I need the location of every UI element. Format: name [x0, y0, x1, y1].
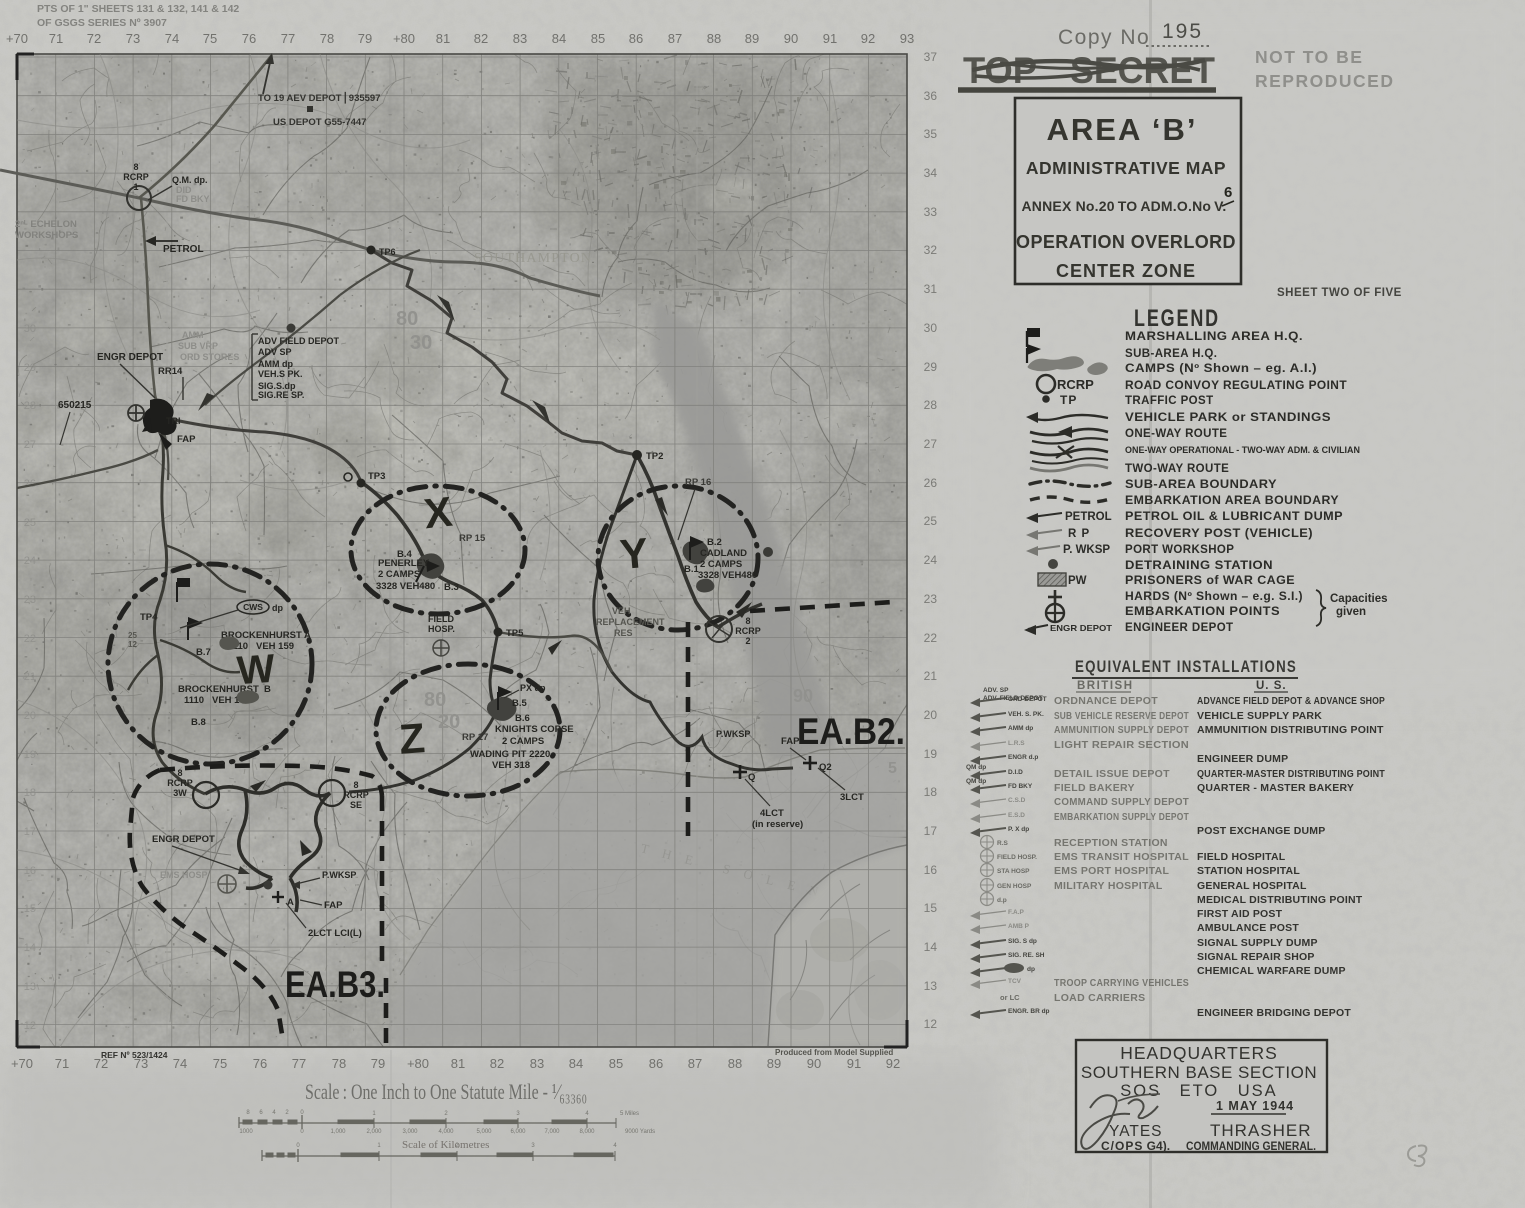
- svg-text:B.1: B.1: [684, 564, 700, 575]
- svg-text:2,000: 2,000: [366, 1129, 382, 1135]
- svg-text:13: 13: [24, 981, 36, 993]
- svg-text:87: 87: [688, 1056, 702, 1071]
- svg-text:U. S.: U. S.: [1256, 680, 1287, 692]
- svg-text:27: 27: [24, 439, 36, 451]
- svg-text:VEHICLE PARK or STANDINGS: VEHICLE PARK or STANDINGS: [1125, 412, 1331, 424]
- svg-text:3LCT: 3LCT: [840, 792, 864, 803]
- svg-text:2ⁿᴸ ECHELON: 2ⁿᴸ ECHELON: [15, 219, 77, 230]
- svg-text:PETROL: PETROL: [163, 244, 204, 255]
- svg-text:30: 30: [24, 323, 36, 335]
- svg-text:71: 71: [55, 1056, 69, 1071]
- svg-text:TP2: TP2: [646, 451, 663, 462]
- svg-text:EMS PORT HOSPITAL: EMS PORT HOSPITAL: [1054, 865, 1169, 877]
- svg-text:ADMINISTRATIVE MAP: ADMINISTRATIVE MAP: [1026, 158, 1226, 178]
- svg-text:EMBARKATION SUPPLY DEPOT: EMBARKATION SUPPLY DEPOT: [1054, 811, 1189, 823]
- svg-text:ENGR DEPOT: ENGR DEPOT: [1050, 623, 1113, 633]
- svg-text:72: 72: [87, 31, 101, 46]
- svg-text:TP3: TP3: [368, 471, 385, 482]
- svg-text:18: 18: [24, 787, 36, 799]
- svg-text:R P: R P: [1068, 528, 1090, 540]
- svg-text:RCRP: RCRP: [1057, 377, 1094, 392]
- svg-text:STATION HOSPITAL: STATION HOSPITAL: [1197, 865, 1300, 877]
- svg-text:SOUTHERN BASE SECTION: SOUTHERN BASE SECTION: [1081, 1063, 1317, 1082]
- svg-text:ONE-WAY ROUTE: ONE-WAY ROUTE: [1125, 428, 1227, 440]
- svg-text:32: 32: [924, 243, 938, 257]
- svg-text:6: 6: [1224, 184, 1232, 201]
- svg-text:36: 36: [924, 89, 938, 103]
- svg-text:80: 80: [424, 689, 446, 711]
- svg-text:MARSHALLING AREA H.Q.: MARSHALLING AREA H.Q.: [1125, 331, 1303, 343]
- svg-text:YATES: YATES: [1109, 1123, 1163, 1140]
- svg-text:650215: 650215: [58, 400, 92, 411]
- svg-text:3328 VEH480: 3328 VEH480: [376, 581, 435, 592]
- svg-text:P. X dp: P. X dp: [1008, 826, 1029, 833]
- svg-text:VEHICLE SUPPLY PARK: VEHICLE SUPPLY PARK: [1197, 710, 1322, 722]
- svg-text:B.3: B.3: [444, 582, 459, 593]
- svg-text:21: 21: [924, 669, 938, 683]
- svg-text:24: 24: [24, 555, 36, 567]
- svg-text:dp: dp: [1027, 966, 1035, 973]
- svg-text:RP 16: RP 16: [685, 477, 711, 488]
- svg-text:FAP: FAP: [781, 736, 800, 747]
- svg-text:89: 89: [767, 1056, 781, 1071]
- svg-text:RECEPTION STATION: RECEPTION STATION: [1054, 837, 1168, 849]
- svg-text:25: 25: [128, 631, 137, 640]
- svg-text:RCRP: RCRP: [343, 790, 369, 800]
- svg-text:79: 79: [358, 31, 372, 46]
- svg-text:given: given: [1336, 606, 1366, 618]
- svg-text:MILITARY HOSPITAL: MILITARY HOSPITAL: [1054, 880, 1163, 892]
- svg-text:83: 83: [530, 1056, 544, 1071]
- svg-text:4LCT: 4LCT: [760, 808, 784, 819]
- svg-text:ENGINEER BRIDGING DEPOT: ENGINEER BRIDGING DEPOT: [1197, 1007, 1351, 1019]
- svg-text:F.A.P: F.A.P: [1008, 909, 1025, 916]
- svg-text:FIELD BAKERY: FIELD BAKERY: [1054, 782, 1135, 794]
- svg-text:16: 16: [24, 865, 36, 877]
- svg-text:C.S.D: C.S.D: [1008, 797, 1026, 804]
- svg-text:THRASHER: THRASHER: [1210, 1121, 1312, 1140]
- svg-text:RCRP: RCRP: [735, 626, 761, 636]
- svg-text:FIELD HOSPITAL: FIELD HOSPITAL: [1197, 851, 1286, 863]
- svg-text:REF Nº 523/1424: REF Nº 523/1424: [101, 1050, 168, 1060]
- svg-text:13: 13: [924, 979, 938, 993]
- svg-text:GEN HOSP: GEN HOSP: [997, 883, 1032, 890]
- svg-text:89: 89: [745, 31, 759, 46]
- svg-text:5,000: 5,000: [476, 1129, 492, 1135]
- svg-text:12: 12: [924, 1017, 938, 1031]
- svg-text:1: 1: [133, 182, 138, 192]
- svg-text:3328 VEH480: 3328 VEH480: [698, 570, 757, 581]
- svg-text:82: 82: [490, 1056, 504, 1071]
- svg-text:US DEPOT G55-7447: US DEPOT G55-7447: [273, 117, 366, 128]
- svg-text:1 MAY 1944: 1 MAY 1944: [1216, 1099, 1294, 1113]
- svg-text:81: 81: [436, 31, 450, 46]
- svg-text:TP6: TP6: [379, 247, 396, 257]
- svg-text:TWO-WAY ROUTE: TWO-WAY ROUTE: [1125, 463, 1229, 475]
- svg-text:ENGR DEPOT: ENGR DEPOT: [97, 352, 163, 363]
- svg-text:20: 20: [924, 708, 938, 722]
- svg-text:ANNEX No.20 TO ADM.O.No V.: ANNEX No.20 TO ADM.O.No V.: [1022, 198, 1227, 214]
- svg-text:30: 30: [410, 332, 432, 354]
- svg-text:ADV SP: ADV SP: [258, 347, 292, 357]
- svg-text:17: 17: [924, 824, 938, 838]
- svg-text:76: 76: [253, 1056, 267, 1071]
- svg-text:SIGNAL SUPPLY DUMP: SIGNAL SUPPLY DUMP: [1197, 937, 1318, 949]
- svg-text:NOT TO BE: NOT TO BE: [1255, 47, 1363, 67]
- svg-text:84: 84: [552, 31, 566, 46]
- svg-text:or LC: or LC: [1000, 993, 1020, 1002]
- svg-text:19: 19: [924, 747, 938, 761]
- svg-text:91: 91: [847, 1056, 861, 1071]
- svg-text:VEH. S. PK.: VEH. S. PK.: [1008, 711, 1044, 718]
- svg-text:Q.M. dp.: Q.M. dp.: [172, 175, 208, 185]
- svg-text:SOUTHAMPTON: SOUTHAMPTON: [474, 251, 592, 266]
- svg-text:AMMUNITION SUPPLY DEPOT: AMMUNITION SUPPLY DEPOT: [1054, 724, 1189, 736]
- svg-text:ROAD CONVOY REGULATING POINT: ROAD CONVOY REGULATING POINT: [1125, 380, 1347, 392]
- svg-text:TRI: TRI: [166, 416, 181, 426]
- svg-text:EMBARKATION AREA BOUNDARY: EMBARKATION AREA BOUNDARY: [1125, 495, 1339, 507]
- svg-text:24: 24: [924, 553, 938, 567]
- svg-text:14: 14: [924, 940, 938, 954]
- svg-text:6,000: 6,000: [510, 1129, 526, 1135]
- svg-text:FAP: FAP: [177, 434, 196, 445]
- svg-text:ORD DEPOT: ORD DEPOT: [1008, 696, 1047, 703]
- svg-text:73: 73: [126, 31, 140, 46]
- svg-text:B.2: B.2: [707, 537, 722, 548]
- svg-text:QUARTER-MASTER DISTRIBUTING PO: QUARTER-MASTER DISTRIBUTING POINT: [1197, 768, 1385, 780]
- svg-text:8: 8: [177, 768, 182, 778]
- svg-text:VEH 318: VEH 318: [492, 760, 530, 771]
- svg-text:EMS HOSP: EMS HOSP: [160, 870, 208, 880]
- svg-text:93: 93: [900, 31, 914, 46]
- svg-text:CADLAND: CADLAND: [700, 548, 747, 559]
- svg-text:KNIGHTS COPSE: KNIGHTS COPSE: [495, 724, 574, 735]
- svg-text:37: 37: [924, 50, 938, 64]
- svg-text:AMM dp: AMM dp: [258, 359, 293, 369]
- svg-text:PETROL: PETROL: [1065, 511, 1112, 523]
- svg-text:83: 83: [513, 31, 527, 46]
- svg-text:RES: RES: [614, 628, 633, 638]
- svg-text:80: 80: [396, 308, 418, 330]
- svg-text:HARDS (Nº Shown – e.g. S.I.): HARDS (Nº Shown – e.g. S.I.): [1125, 591, 1303, 603]
- svg-text:QM dp: QM dp: [966, 778, 986, 785]
- svg-text:91: 91: [823, 31, 837, 46]
- svg-text:d.p: d.p: [997, 897, 1007, 904]
- svg-text:90: 90: [807, 1056, 821, 1071]
- svg-text:ADV. SP: ADV. SP: [983, 687, 1009, 694]
- svg-text:19: 19: [24, 749, 36, 761]
- svg-text:COMMANDING GENERAL.: COMMANDING GENERAL.: [1186, 1139, 1316, 1153]
- svg-text:EA.B3.: EA.B3.: [285, 964, 385, 1005]
- svg-text:SIG.RE SP.: SIG.RE SP.: [258, 390, 304, 400]
- svg-text:CAMPS (Nº Shown – eg. A.I.): CAMPS (Nº Shown – eg. A.I.): [1125, 363, 1317, 375]
- svg-text:QUARTER - MASTER BAKERY: QUARTER - MASTER BAKERY: [1197, 782, 1354, 794]
- svg-text:9000 Yards: 9000 Yards: [625, 1129, 655, 1135]
- svg-text:76: 76: [242, 31, 256, 46]
- svg-text:RECOVERY POST (VEHICLE): RECOVERY POST (VEHICLE): [1125, 528, 1313, 540]
- svg-text:(in reserve): (in reserve): [752, 819, 803, 830]
- svg-text:28: 28: [924, 398, 938, 412]
- svg-text:B.4: B.4: [397, 549, 413, 560]
- svg-text:17: 17: [24, 826, 36, 838]
- svg-text:35: 35: [924, 127, 938, 141]
- svg-text:R.S: R.S: [997, 840, 1009, 847]
- svg-text:3,000: 3,000: [402, 1129, 418, 1135]
- svg-text:ENGR d.p: ENGR d.p: [1008, 754, 1038, 761]
- svg-text:PX dp: PX dp: [520, 683, 546, 693]
- svg-text:C / O P S G4).: C / O P S G4).: [1101, 1139, 1170, 1153]
- svg-text:WORKSHOPS: WORKSHOPS: [15, 230, 78, 241]
- svg-text:SIGNAL REPAIR SHOP: SIGNAL REPAIR SHOP: [1197, 951, 1315, 963]
- svg-text:RP 15: RP 15: [459, 533, 486, 544]
- svg-text:P. WKSP: P. WKSP: [1063, 544, 1110, 556]
- svg-text:SIG. RE. SH: SIG. RE. SH: [1008, 952, 1045, 959]
- svg-text:20: 20: [438, 711, 460, 733]
- svg-text:TO 19 AEV DEPOT ⎜935597: TO 19 AEV DEPOT ⎜935597: [258, 91, 381, 104]
- svg-text:SUB-AREA BOUNDARY: SUB-AREA BOUNDARY: [1125, 479, 1277, 491]
- svg-text:8: 8: [133, 162, 138, 172]
- svg-text:25: 25: [924, 514, 938, 528]
- svg-text:POST EXCHANGE DUMP: POST EXCHANGE DUMP: [1197, 825, 1325, 837]
- svg-text:+70: +70: [6, 31, 28, 46]
- svg-text:92: 92: [861, 31, 875, 46]
- svg-text:EMBARKATION POINTS: EMBARKATION POINTS: [1125, 606, 1280, 618]
- svg-text:Q: Q: [748, 772, 755, 783]
- svg-text:Y: Y: [618, 529, 650, 578]
- svg-text:16: 16: [924, 863, 938, 877]
- svg-text:TP: TP: [1060, 393, 1077, 407]
- svg-text:81: 81: [451, 1056, 465, 1071]
- svg-text:HOSP.: HOSP.: [428, 624, 455, 634]
- svg-text:P.WKSP: P.WKSP: [322, 870, 356, 880]
- svg-text:23: 23: [924, 592, 938, 606]
- svg-text:34: 34: [924, 166, 938, 180]
- svg-text:AMB P: AMB P: [1008, 923, 1030, 930]
- svg-text:AREA ‘B’: AREA ‘B’: [1047, 112, 1198, 147]
- svg-text:PETROL OIL & LUBRICANT DUMP: PETROL OIL & LUBRICANT DUMP: [1125, 511, 1343, 523]
- svg-text:28: 28: [24, 400, 36, 412]
- svg-text:RCRP: RCRP: [123, 172, 149, 182]
- svg-text:SECRET: SECRET: [1070, 50, 1215, 91]
- svg-text:SHEET TWO OF FIVE: SHEET TWO OF FIVE: [1277, 287, 1402, 299]
- svg-text:E.S.D: E.S.D: [1008, 812, 1025, 819]
- svg-text:74: 74: [165, 31, 179, 46]
- svg-text:Scale : One Inch to One Statu: Scale : One Inch to One Statute Mile - ¹…: [305, 1079, 587, 1104]
- svg-text:VEH: VEH: [612, 606, 631, 616]
- svg-text:22: 22: [24, 633, 36, 645]
- svg-text:PTS OF 1" SHEETS 131 & 132, 14: PTS OF 1" SHEETS 131 & 132, 141 & 142: [37, 3, 239, 15]
- svg-text:78: 78: [332, 1056, 346, 1071]
- svg-text:5 Miles: 5 Miles: [620, 1111, 639, 1117]
- svg-text:SUB VEHICLE RESERVE DEPOT: SUB VEHICLE RESERVE DEPOT: [1054, 710, 1189, 722]
- svg-text:75: 75: [203, 31, 217, 46]
- svg-text:GENERAL HOSPITAL: GENERAL HOSPITAL: [1197, 880, 1307, 892]
- svg-text:25: 25: [24, 517, 36, 529]
- svg-text:Capacities: Capacities: [1330, 593, 1388, 605]
- svg-text:79: 79: [371, 1056, 385, 1071]
- svg-text:CENTER ZONE: CENTER ZONE: [1056, 261, 1196, 281]
- svg-text:RP 17: RP 17: [462, 732, 488, 743]
- svg-text:TP5: TP5: [506, 628, 524, 639]
- svg-text:ENGR DEPOT: ENGR DEPOT: [152, 834, 215, 845]
- svg-text:B.6: B.6: [515, 713, 530, 724]
- svg-text:MEDICAL DISTRIBUTING POINT: MEDICAL DISTRIBUTING POINT: [1197, 894, 1363, 906]
- svg-text:90: 90: [793, 686, 813, 706]
- svg-text:22: 22: [924, 631, 938, 645]
- svg-text:2 CAMPS: 2 CAMPS: [700, 559, 742, 570]
- svg-text:STA HOSP: STA HOSP: [997, 868, 1030, 875]
- svg-text:AMM dp: AMM dp: [1008, 725, 1033, 732]
- svg-text:CWS: CWS: [243, 602, 263, 612]
- svg-text:EQUIVALENT INSTALLATIONS: EQUIVALENT INSTALLATIONS: [1075, 658, 1297, 676]
- svg-text:X: X: [422, 488, 455, 538]
- svg-text:OPERATION OVERLORD: OPERATION OVERLORD: [1016, 232, 1236, 252]
- svg-text:WADING PIT 2220: WADING PIT 2220: [470, 749, 550, 760]
- svg-text:2 CAMPS: 2 CAMPS: [378, 569, 420, 580]
- svg-text:1,000: 1,000: [330, 1129, 346, 1135]
- svg-text:12: 12: [24, 1020, 36, 1032]
- svg-text:TRAFFIC POST: TRAFFIC POST: [1125, 395, 1214, 407]
- svg-text:82: 82: [474, 31, 488, 46]
- svg-text:14: 14: [24, 942, 36, 954]
- svg-text:84: 84: [569, 1056, 583, 1071]
- svg-text:ENGR. BR dp: ENGR. BR dp: [1008, 1008, 1050, 1015]
- svg-text:ORDNANCE DEPOT: ORDNANCE DEPOT: [1054, 695, 1158, 707]
- svg-text:PW: PW: [1068, 575, 1087, 587]
- svg-text:3W: 3W: [173, 788, 187, 798]
- svg-text:PORT WORKSHOP: PORT WORKSHOP: [1125, 544, 1234, 556]
- svg-text:4,000: 4,000: [438, 1129, 454, 1135]
- svg-text:FD BKY: FD BKY: [1008, 783, 1033, 790]
- svg-text:78: 78: [320, 31, 334, 46]
- svg-text:DETAIL ISSUE DEPOT: DETAIL ISSUE DEPOT: [1054, 768, 1170, 780]
- svg-text:EMS TRANSIT HOSPITAL: EMS TRANSIT HOSPITAL: [1054, 851, 1189, 863]
- svg-text:+80: +80: [393, 31, 415, 46]
- svg-text:AMM: AMM: [182, 330, 204, 340]
- svg-text:BRITISH: BRITISH: [1077, 680, 1134, 692]
- svg-text:90: 90: [784, 31, 798, 46]
- svg-text:REPLACEMENT: REPLACEMENT: [596, 617, 665, 627]
- svg-text:DETRAINING STATION: DETRAINING STATION: [1125, 560, 1273, 572]
- svg-text:L.R.S: L.R.S: [1008, 740, 1025, 747]
- svg-text:15: 15: [24, 903, 36, 915]
- svg-text:P.WKSP: P.WKSP: [716, 729, 750, 739]
- svg-text:5: 5: [888, 760, 897, 777]
- svg-text:12: 12: [128, 640, 137, 649]
- svg-text:75: 75: [213, 1056, 227, 1071]
- svg-text:+70: +70: [11, 1056, 33, 1071]
- svg-text:Copy No: Copy No: [1058, 26, 1150, 49]
- svg-text:ENGINEER DEPOT: ENGINEER DEPOT: [1125, 622, 1233, 634]
- svg-text:74: 74: [173, 1056, 187, 1071]
- svg-text:77: 77: [292, 1056, 306, 1071]
- svg-text:B.5: B.5: [512, 698, 528, 709]
- svg-text:AMBULANCE POST: AMBULANCE POST: [1197, 922, 1299, 934]
- svg-text:FD BKY: FD BKY: [176, 194, 210, 204]
- svg-text:EA.B2.: EA.B2.: [797, 711, 905, 752]
- svg-text:29: 29: [924, 360, 938, 374]
- svg-text:B.7: B.7: [196, 647, 211, 658]
- svg-text:REPRODUCED: REPRODUCED: [1255, 71, 1394, 91]
- svg-text:PRISONERS of WAR CAGE: PRISONERS of WAR CAGE: [1125, 575, 1295, 587]
- svg-text:71: 71: [49, 31, 63, 46]
- svg-text:HEADQUARTERS: HEADQUARTERS: [1120, 1043, 1278, 1063]
- svg-text:8,000: 8,000: [579, 1129, 595, 1135]
- svg-text:88: 88: [707, 31, 721, 46]
- svg-text:2 CAMPS: 2 CAMPS: [502, 736, 544, 747]
- svg-text:30: 30: [924, 321, 938, 335]
- svg-text:23: 23: [24, 594, 36, 606]
- svg-text:18: 18: [924, 785, 938, 799]
- svg-text:D.I.D: D.I.D: [1008, 769, 1023, 776]
- svg-text:VEH.S PK.: VEH.S PK.: [258, 369, 303, 379]
- svg-text:SE: SE: [350, 800, 362, 810]
- svg-text:ONE-WAY OPERATIONAL - TWO-WA: ONE-WAY OPERATIONAL - TWO-WAY ADM. & CIV…: [1125, 445, 1360, 455]
- svg-text:TCV: TCV: [1008, 978, 1022, 985]
- svg-text:2: 2: [745, 636, 750, 646]
- svg-text:FIRST AID POST: FIRST AID POST: [1197, 908, 1283, 920]
- svg-text:86: 86: [629, 31, 643, 46]
- svg-text:FIELD: FIELD: [428, 614, 454, 624]
- svg-text:RR14: RR14: [158, 366, 183, 377]
- svg-text:+80: +80: [407, 1056, 429, 1071]
- svg-text:85: 85: [609, 1056, 623, 1071]
- svg-text:ADV FIELD DEPOT: ADV FIELD DEPOT: [258, 336, 340, 346]
- svg-text:20: 20: [24, 710, 36, 722]
- svg-text:OF GSGS SERIES Nº 3907: OF GSGS SERIES Nº 3907: [37, 17, 167, 29]
- svg-text:TP4: TP4: [140, 612, 158, 623]
- svg-text:AMMUNITION DISTRIBUTING POINT: AMMUNITION DISTRIBUTING POINT: [1197, 724, 1384, 736]
- svg-text:ENGINEER DUMP: ENGINEER DUMP: [1197, 753, 1288, 765]
- svg-text:87: 87: [668, 31, 682, 46]
- svg-text:CHEMICAL WARFARE DUMP: CHEMICAL WARFARE DUMP: [1197, 965, 1346, 977]
- svg-text:33: 33: [924, 205, 938, 219]
- svg-text:21: 21: [24, 671, 36, 683]
- svg-text:92: 92: [886, 1056, 900, 1071]
- svg-text:ADVANCE FIELD DEPOT & ADVANCE: ADVANCE FIELD DEPOT & ADVANCE SHOP: [1197, 695, 1385, 707]
- svg-text:8: 8: [353, 780, 358, 790]
- svg-text:SUB VRP: SUB VRP: [178, 341, 218, 351]
- svg-text:Scale of Kilometres: Scale of Kilometres: [402, 1139, 489, 1151]
- svg-text:QM dp: QM dp: [966, 764, 986, 771]
- svg-text:Produced from Model Supplie: Produced from Model Supplied: [775, 1048, 893, 1057]
- svg-text:COMMAND SUPPLY DEPOT: COMMAND SUPPLY DEPOT: [1054, 796, 1189, 808]
- svg-text:TROOP CARRYING VEHICLES: TROOP CARRYING VEHICLES: [1054, 977, 1189, 989]
- svg-text:SOS ETO USA: SOS ETO USA: [1120, 1082, 1277, 1100]
- svg-text:8: 8: [745, 616, 750, 626]
- svg-text:FAP: FAP: [324, 900, 343, 911]
- svg-text:29: 29: [24, 362, 36, 374]
- svg-text:FIELD HOSP.: FIELD HOSP.: [997, 854, 1037, 861]
- svg-text:2LCT LCI(L): 2LCT LCI(L): [308, 928, 362, 939]
- svg-text:B.8: B.8: [191, 717, 206, 728]
- svg-text:RCRP: RCRP: [167, 778, 193, 788]
- svg-text:27: 27: [924, 437, 938, 451]
- svg-text:SIG. S dp: SIG. S dp: [1008, 938, 1037, 945]
- svg-text:Z: Z: [398, 714, 427, 763]
- svg-text:77: 77: [281, 31, 295, 46]
- svg-text:LIGHT REPAIR SECTION: LIGHT REPAIR SECTION: [1054, 739, 1189, 751]
- svg-text:26: 26: [924, 476, 938, 490]
- svg-text:88: 88: [728, 1056, 742, 1071]
- svg-text:1000: 1000: [239, 1129, 253, 1135]
- svg-text:31: 31: [924, 282, 938, 296]
- svg-text:86: 86: [649, 1056, 663, 1071]
- svg-text:195: 195: [1162, 20, 1203, 43]
- svg-text:85: 85: [591, 31, 605, 46]
- svg-text:ORD STORES: ORD STORES: [180, 352, 239, 362]
- svg-text:LEGEND: LEGEND: [1134, 305, 1220, 332]
